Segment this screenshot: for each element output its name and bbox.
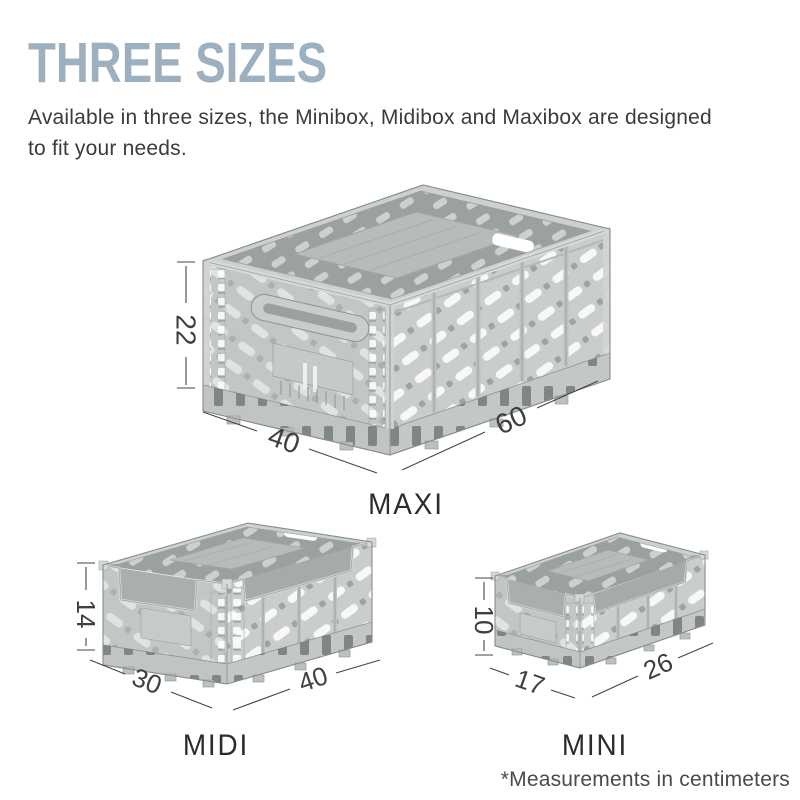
measurements-note: *Measurements in centimeters bbox=[370, 768, 790, 792]
infographic-page: THREE SIZES Available in three sizes, th… bbox=[0, 0, 800, 800]
midi-crate-illustration bbox=[95, 512, 475, 702]
maxi-crate-illustration bbox=[185, 183, 625, 483]
maxi-label: MAXI bbox=[313, 488, 499, 522]
page-subtitle: Available in three sizes, the Minibox, M… bbox=[28, 102, 712, 164]
mini-crate-illustration bbox=[468, 530, 788, 688]
midi-label: MIDI bbox=[123, 729, 309, 763]
page-title: THREE SIZES bbox=[28, 30, 327, 96]
subtitle-line-2: to fit your needs. bbox=[28, 133, 712, 164]
mini-label: MINI bbox=[502, 729, 688, 763]
subtitle-line-1: Available in three sizes, the Minibox, M… bbox=[28, 102, 712, 133]
